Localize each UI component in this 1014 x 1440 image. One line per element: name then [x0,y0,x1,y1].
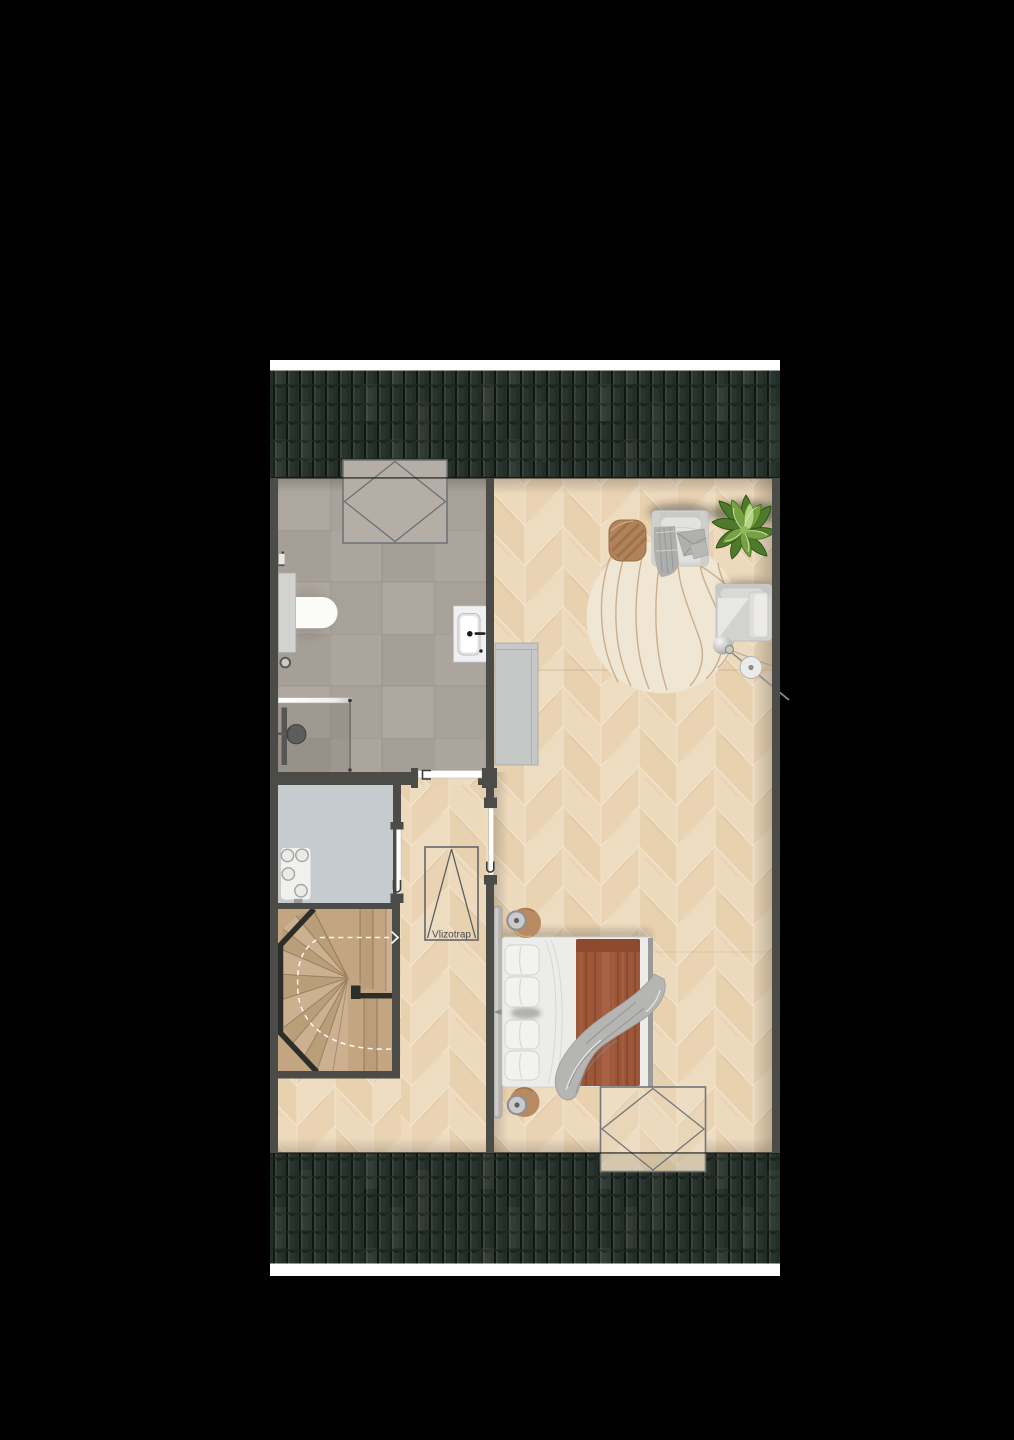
svg-text:Vlizotrap: Vlizotrap [432,930,471,941]
